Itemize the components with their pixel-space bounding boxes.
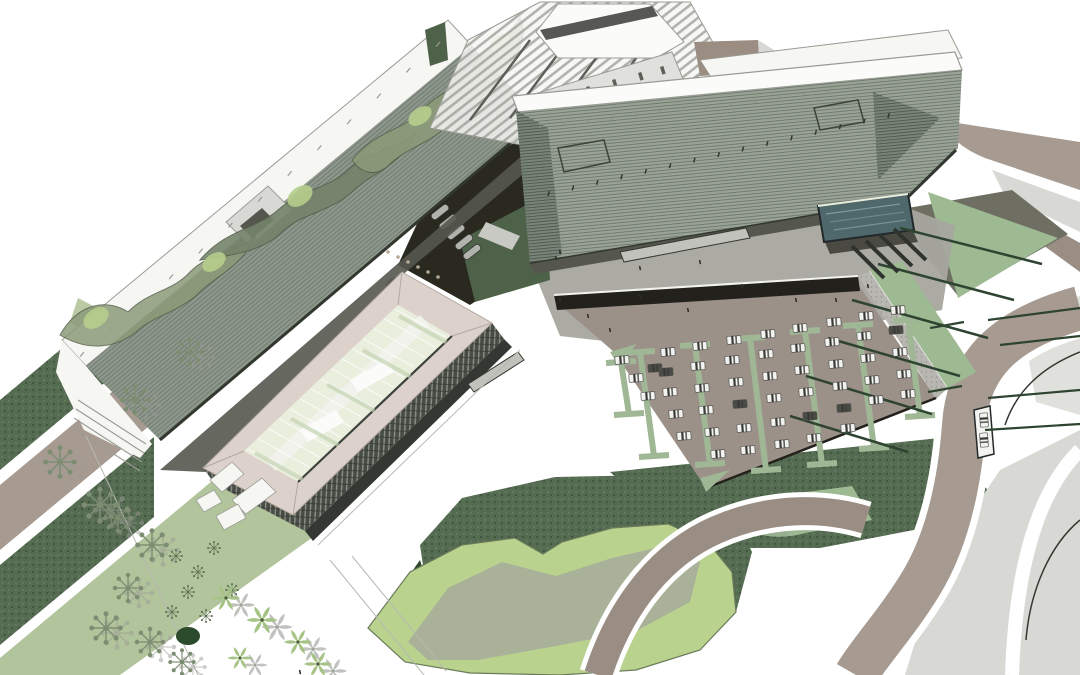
small-tree — [191, 565, 204, 578]
bollard — [386, 250, 390, 254]
parked-car — [859, 312, 874, 321]
evergreen-clump — [176, 627, 200, 645]
parked-car — [893, 348, 908, 357]
architectural-rendering-canvas — [0, 0, 1080, 675]
parked-car — [699, 406, 714, 415]
parked-car — [629, 374, 644, 383]
parked-car — [791, 344, 806, 353]
small-tree — [199, 609, 212, 622]
parked-car — [677, 432, 692, 441]
divider-cap — [625, 351, 655, 353]
parked-car — [795, 366, 810, 375]
parked-car — [833, 382, 848, 391]
tree-shadow — [114, 508, 143, 537]
parked-car — [827, 318, 842, 327]
parked-car — [741, 446, 756, 455]
bollard — [396, 255, 400, 259]
tree-shadow — [124, 578, 153, 607]
parked-car — [861, 354, 876, 363]
parked-car — [829, 360, 844, 369]
divider-cap — [807, 463, 837, 465]
star-tree — [44, 446, 76, 478]
star-tree — [177, 339, 203, 365]
divider-cap — [614, 413, 644, 415]
small-tree — [207, 541, 220, 554]
parked-car — [807, 434, 822, 443]
tree-shadow — [131, 390, 160, 419]
parked-car — [771, 418, 786, 427]
parked-car — [837, 404, 852, 413]
divider-cap — [905, 415, 935, 417]
divider-cap — [639, 455, 669, 457]
small-tree — [165, 605, 178, 618]
parked-car — [711, 450, 726, 459]
bollard — [426, 270, 430, 274]
parked-car — [661, 348, 676, 357]
parked-car — [980, 433, 989, 448]
star-tree — [136, 529, 168, 561]
tree-shadow — [188, 344, 214, 370]
star-tree — [82, 487, 117, 522]
divider-cap — [843, 324, 873, 326]
parked-car — [729, 378, 744, 387]
parked-car — [891, 306, 906, 315]
parked-car — [901, 390, 916, 399]
parked-car — [659, 368, 674, 377]
small-tree — [169, 549, 182, 562]
star-tree — [135, 627, 164, 656]
divider-cap — [751, 469, 781, 471]
parked-car — [727, 336, 742, 345]
bollard — [406, 260, 410, 264]
parked-car — [693, 342, 708, 351]
star-tree — [90, 612, 122, 644]
parked-car — [641, 392, 656, 401]
parked-car — [695, 384, 710, 393]
parked-car — [865, 376, 880, 385]
star-tree — [113, 573, 142, 602]
tree-shadow — [146, 632, 175, 661]
parked-car — [767, 394, 782, 403]
site-plan-svg — [0, 0, 1080, 675]
bollard — [416, 265, 420, 269]
parked-car — [889, 326, 904, 335]
divider-cap — [695, 463, 725, 465]
parked-car — [705, 428, 720, 437]
star-tree — [169, 649, 195, 675]
parked-car — [737, 424, 752, 433]
parked-car — [615, 356, 630, 365]
parked-car — [733, 400, 748, 409]
parked-car — [897, 370, 912, 379]
star-tree — [103, 503, 132, 532]
parked-car — [825, 338, 840, 347]
parked-car — [869, 396, 884, 405]
parked-car — [759, 350, 774, 359]
parked-car — [803, 412, 818, 421]
parked-car — [980, 413, 989, 428]
parked-car — [725, 356, 740, 365]
parked-car — [761, 330, 776, 339]
parked-car — [663, 388, 678, 397]
bollard — [436, 275, 440, 279]
parked-car — [775, 440, 790, 449]
small-tree — [181, 585, 194, 598]
parked-car — [669, 410, 684, 419]
parked-car — [793, 324, 808, 333]
bus-bay — [974, 406, 994, 458]
divider-cap — [859, 447, 889, 449]
parked-car — [763, 372, 778, 381]
parked-car — [799, 388, 814, 397]
parked-car — [857, 332, 872, 341]
parked-car — [691, 362, 706, 371]
parked-car — [841, 424, 856, 433]
star-tree — [120, 385, 149, 414]
